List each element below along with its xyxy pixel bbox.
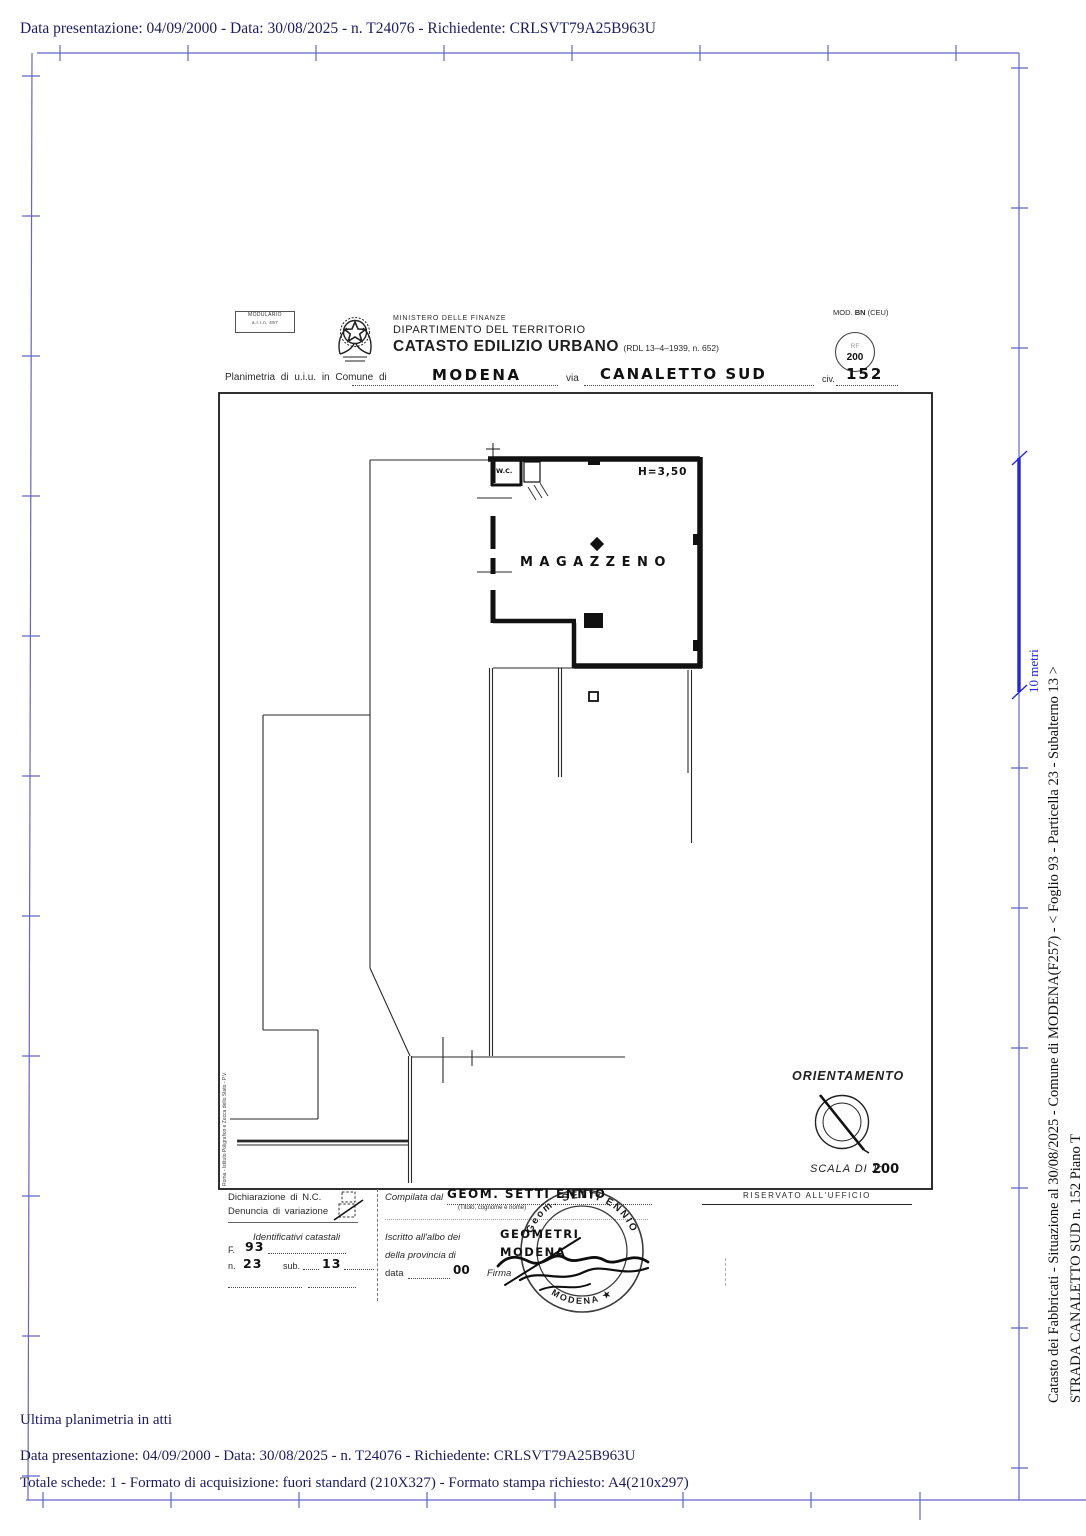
mod-bn-label: MOD. BN (CEU) (833, 308, 888, 317)
height-label: H=3,50 (638, 466, 688, 478)
orientamento-label: ORIENTAMENTO (792, 1069, 904, 1083)
orientation-compass (816, 1095, 870, 1153)
document-page: Data presentazione: 04/09/2000 - Data: 3… (0, 0, 1086, 1536)
mod-prefix: MOD. (833, 308, 853, 317)
dipartimento-label: DIPARTIMENTO DEL TERRITORIO (393, 324, 586, 336)
mod-suffix: (CEU) (868, 308, 889, 317)
civ-value: 152 (846, 365, 883, 383)
scala-value: 200 (872, 1162, 899, 1177)
modulario-line2: a.r.r.n. 497 (236, 320, 294, 327)
planimetria-label: Planimetria di u.i.u. in Comune di (225, 372, 387, 383)
rf-value: 200 (847, 352, 864, 363)
svg-text:MODENA ★: MODENA ★ (550, 1287, 614, 1306)
ruler-label: 10 metri (1026, 649, 1042, 693)
courtyard-lines (230, 443, 692, 1183)
civ-dotted-line (836, 384, 898, 386)
ministero-label: MINISTERO DELLE FINANZE (393, 315, 506, 322)
checkbox-nc (342, 1192, 355, 1202)
via-label: via (566, 373, 579, 384)
rdl-reference: (RDL 13–4–1939, n. 652) (623, 343, 719, 353)
scale-ruler-10m (1012, 451, 1027, 699)
svg-text:Geom. SETTI ENNIO: Geom. SETTI ENNIO (524, 1190, 639, 1235)
comune-dotted-line (352, 384, 558, 386)
mod-bn: BN (855, 308, 866, 317)
print-credit: Roma - Istituto Poligrafico e Zecca dell… (222, 1072, 228, 1186)
civ-label: civ. (822, 374, 835, 384)
via-value: CANALETTO SUD (600, 365, 767, 383)
modulario-line1: MODULARIO (236, 312, 294, 320)
catasto-title: CATASTO EDILIZIO URBANO (393, 338, 619, 355)
side-caption-strada: STRADA CANALETTO SUD n. 152 Piano T (1068, 1134, 1085, 1403)
italy-emblem-icon (331, 308, 379, 366)
totale-schede-line: Totale schede: 1 - Formato di acquisizio… (20, 1475, 689, 1492)
rf-top-label: RF (851, 343, 860, 350)
stamp-bottom-text: MODENA ★ (550, 1287, 614, 1306)
stamp-top-text: Geom. SETTI ENNIO (524, 1190, 639, 1235)
modulario-box: MODULARIO a.r.r.n. 497 (235, 311, 295, 333)
form-overlay: Geom. SETTI ENNIO MODENA ★ (225, 1185, 935, 1345)
via-dotted-line (584, 384, 814, 386)
wc-label: W.C. (496, 467, 512, 475)
floor-plan-drawing: W.C. H=3,50 MAGAZZENO ORIENTAMENTO SCALA… (218, 392, 933, 1190)
comune-value: MODENA (432, 366, 522, 384)
notary-stamp: Geom. SETTI ENNIO MODENA ★ (498, 1190, 648, 1312)
room-label: MAGAZZENO (520, 555, 672, 570)
side-caption-catasto: Catasto dei Fabbricati - Situazione al 3… (1046, 666, 1063, 1403)
ultima-planimetria-line: Ultima planimetria in atti (20, 1412, 172, 1429)
bottom-presentation-line: Data presentazione: 04/09/2000 - Data: 3… (20, 1448, 635, 1465)
